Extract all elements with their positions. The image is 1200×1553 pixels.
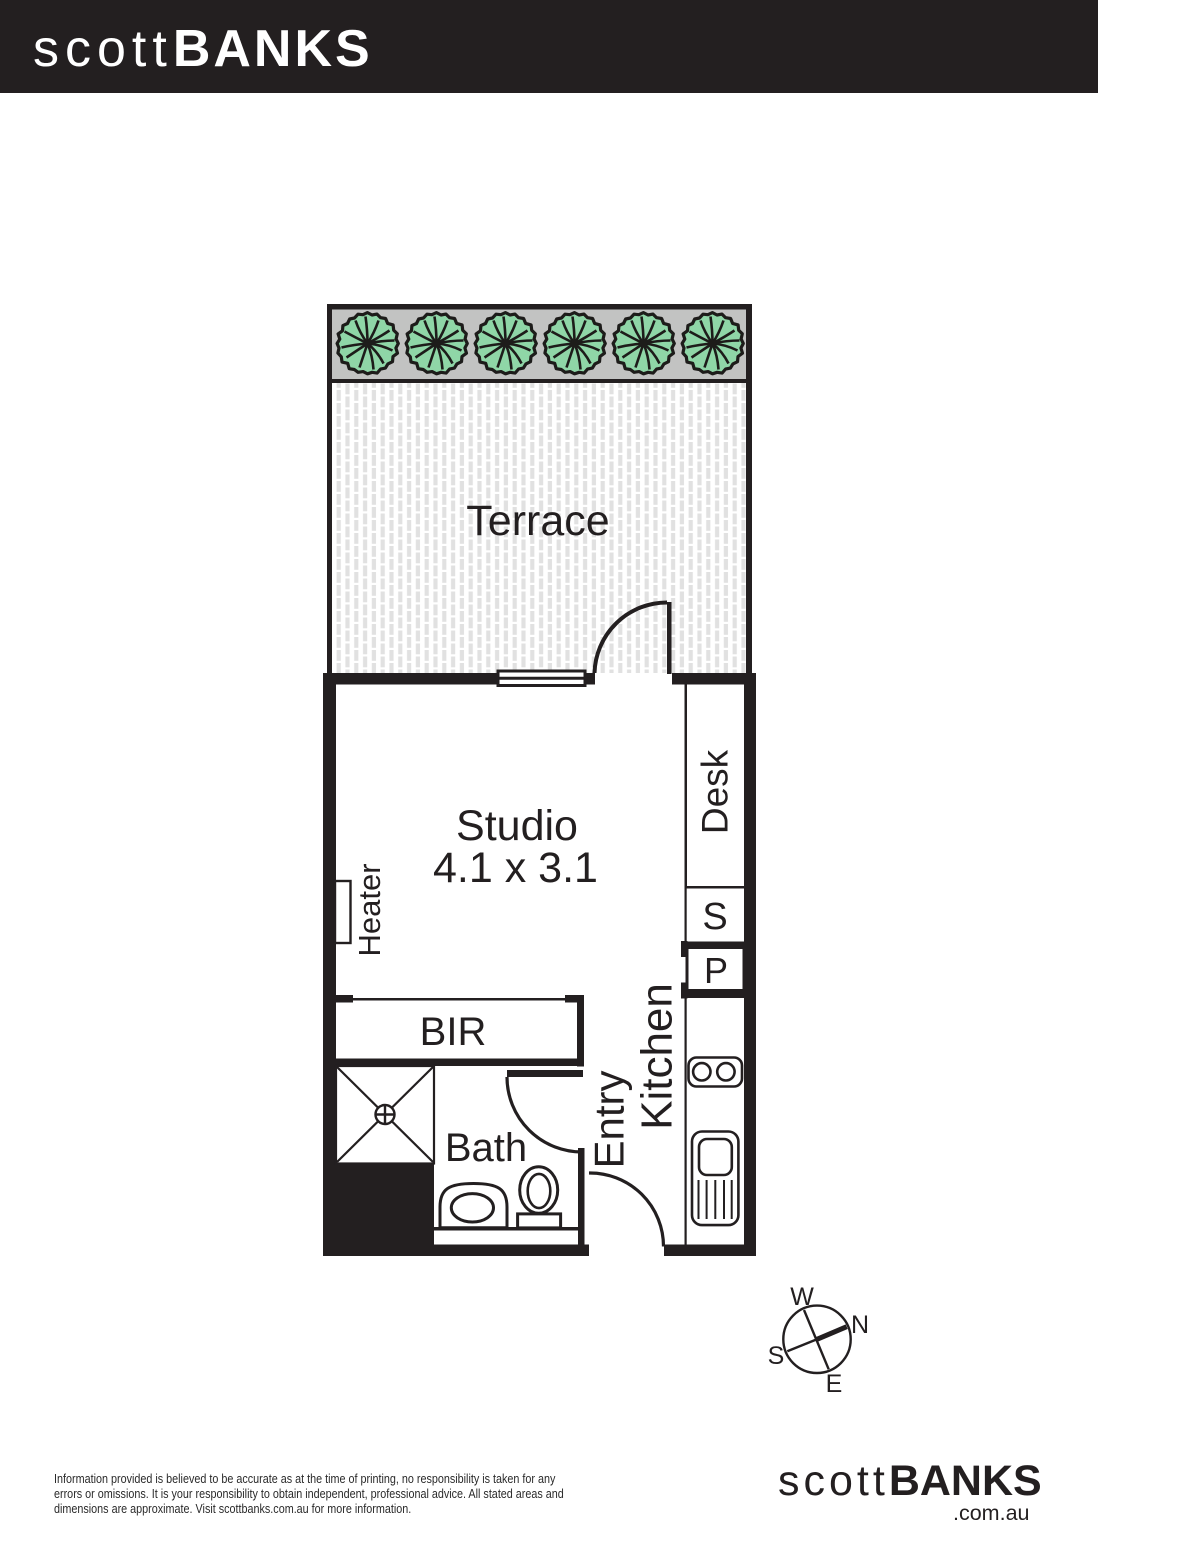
- svg-text:Studio: Studio: [456, 802, 578, 850]
- svg-text:Heater: Heater: [352, 863, 387, 956]
- svg-text:P: P: [704, 950, 728, 991]
- svg-text:Desk: Desk: [695, 749, 736, 834]
- svg-text:Kitchen: Kitchen: [633, 983, 682, 1130]
- svg-text:E: E: [826, 1370, 843, 1398]
- svg-text:S: S: [702, 896, 727, 938]
- svg-text:Entry: Entry: [586, 1070, 633, 1168]
- svg-text:BIR: BIR: [420, 1010, 487, 1054]
- svg-text:Terrace: Terrace: [466, 497, 609, 545]
- svg-text:W: W: [790, 1283, 814, 1311]
- svg-text:S: S: [768, 1342, 785, 1370]
- svg-text:Bath: Bath: [445, 1126, 527, 1170]
- svg-text:4.1 x 3.1: 4.1 x 3.1: [433, 844, 598, 892]
- svg-text:N: N: [851, 1311, 869, 1339]
